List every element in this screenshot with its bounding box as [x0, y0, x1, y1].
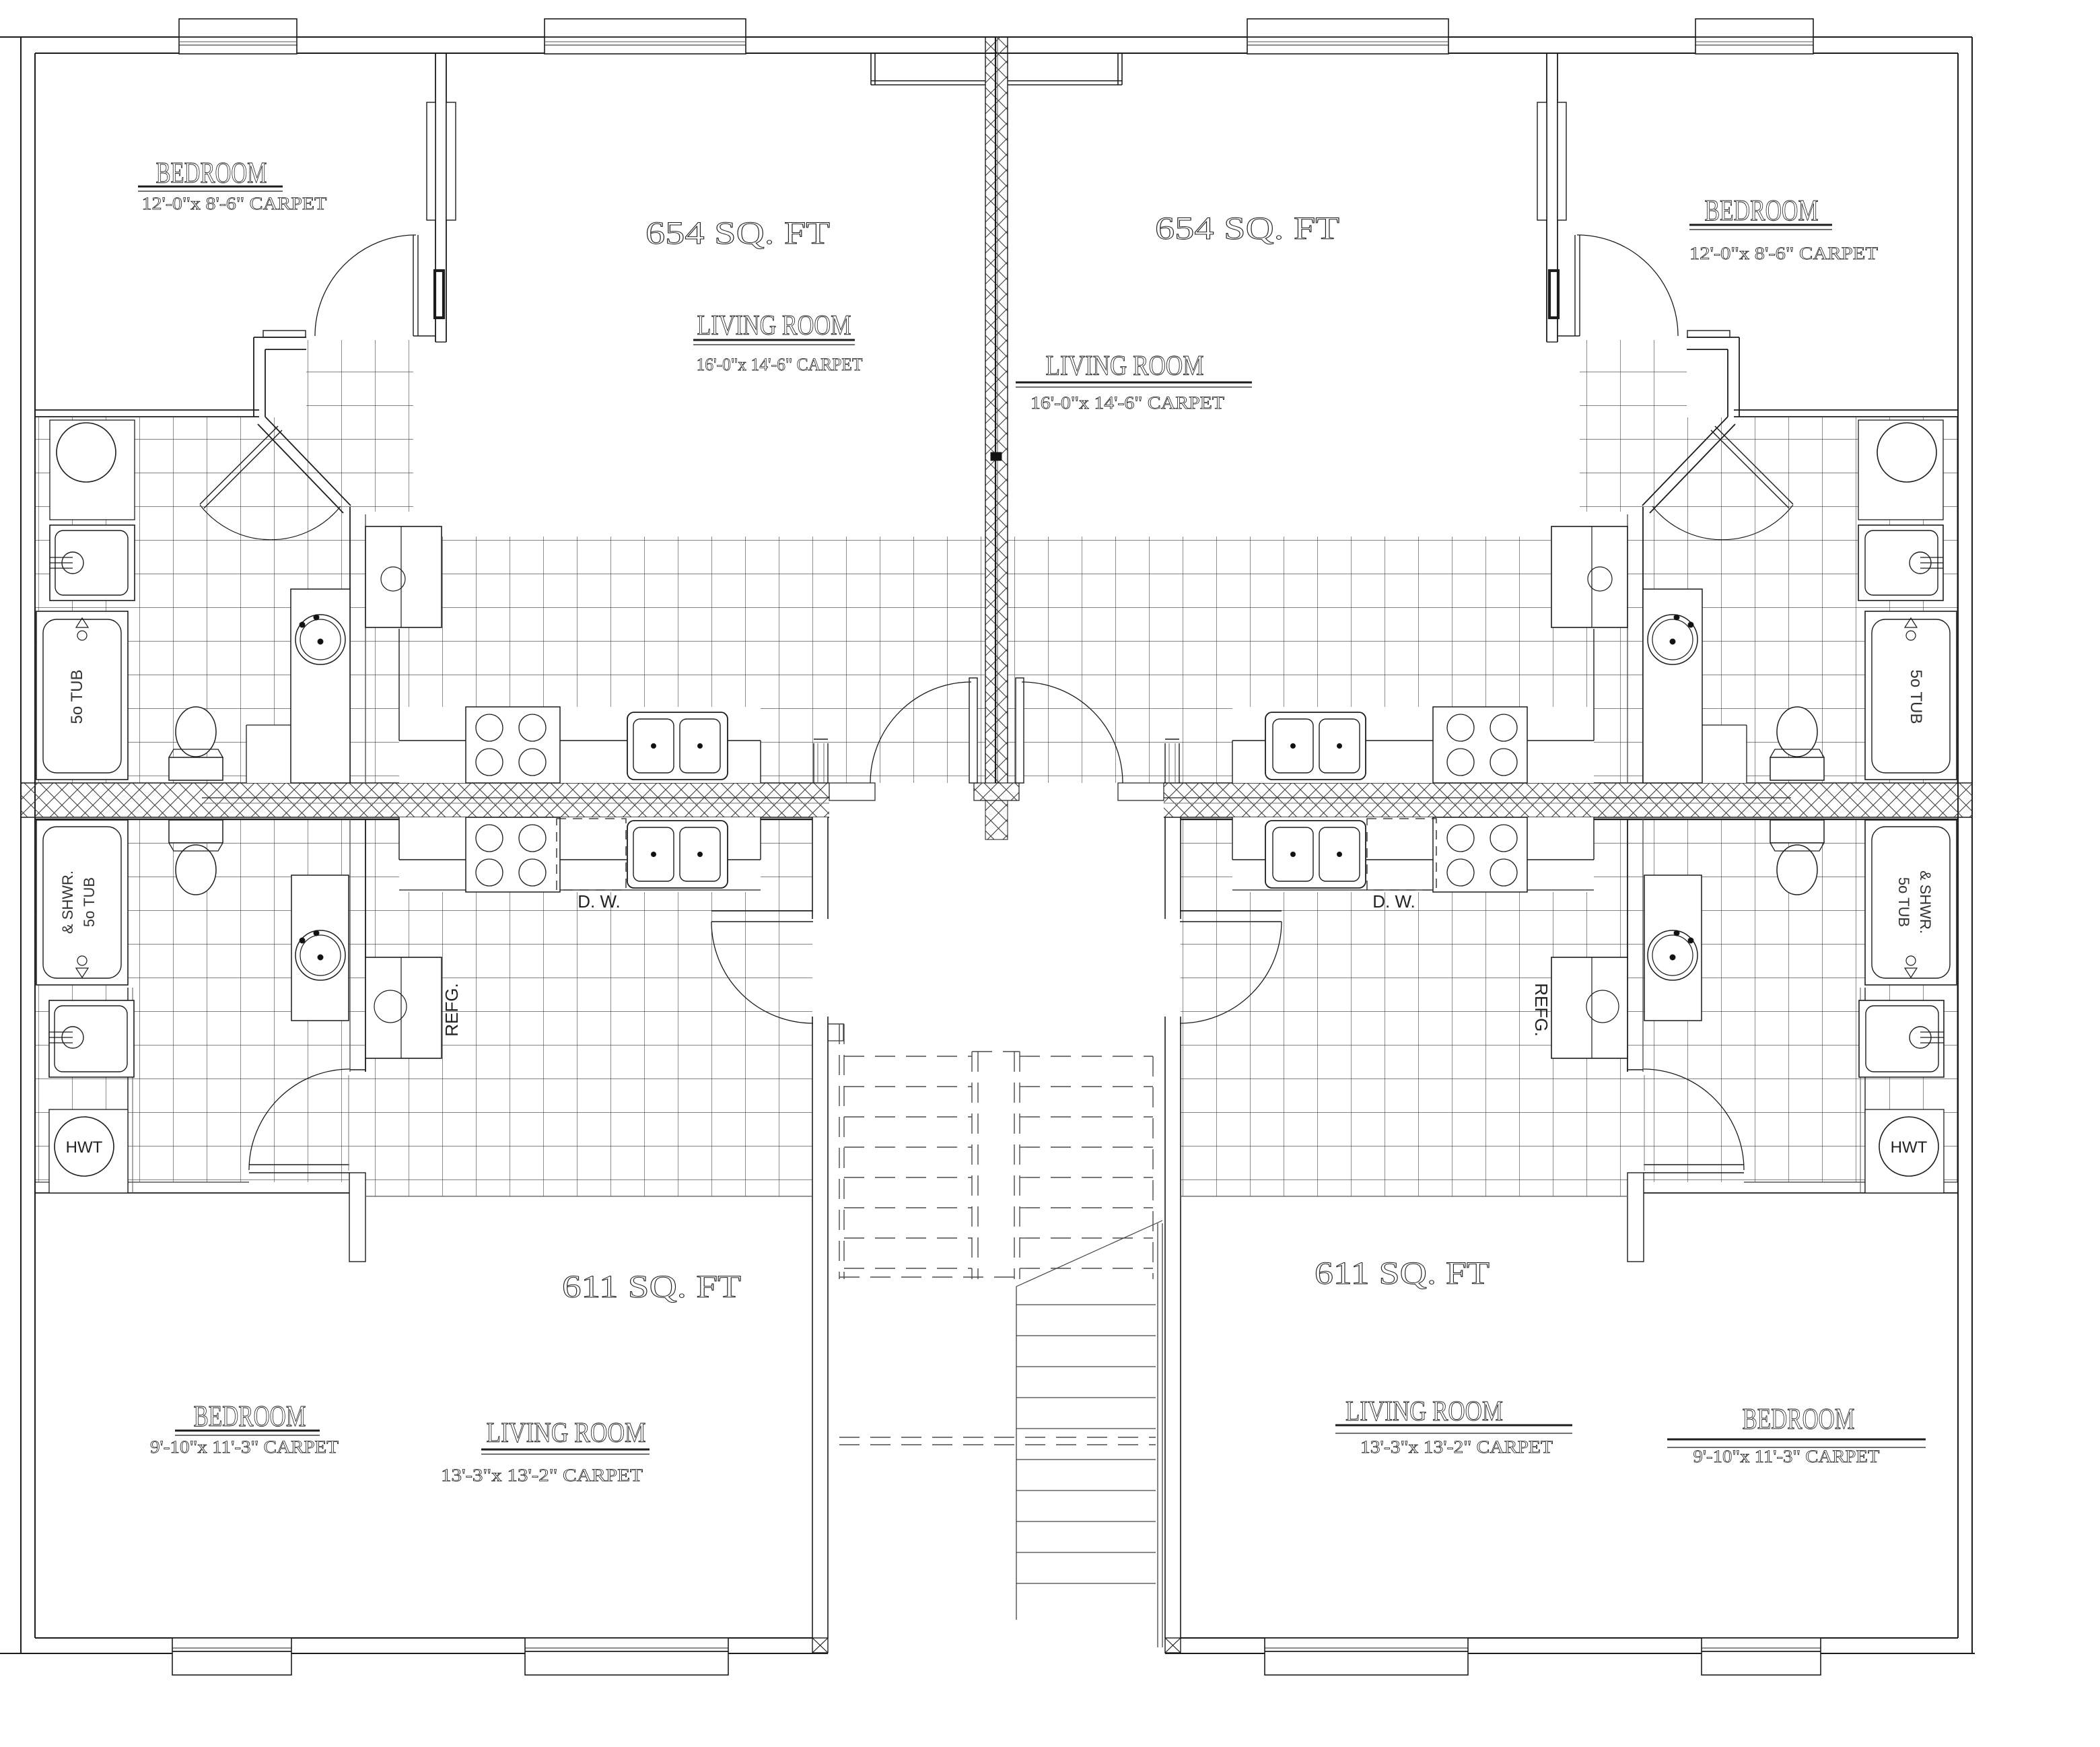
svg-text:REFG.: REFG. — [442, 983, 462, 1036]
svg-text:13'-3"x 13'-2" CARPET: 13'-3"x 13'-2" CARPET — [1360, 1437, 1553, 1457]
svg-text:D. W.: D. W. — [1372, 891, 1415, 912]
svg-text:611 SQ. FT: 611 SQ. FT — [562, 1269, 741, 1305]
svg-text:12'-0"x 8'-6" CARPET: 12'-0"x 8'-6" CARPET — [142, 194, 327, 213]
svg-text:16'-0"x 14'-6" CARPET: 16'-0"x 14'-6" CARPET — [1030, 393, 1224, 413]
svg-text:9'-10"x 11'-3" CARPET: 9'-10"x 11'-3" CARPET — [150, 1437, 339, 1457]
svg-text:13'-3"x 13'-2" CARPET: 13'-3"x 13'-2" CARPET — [441, 1466, 643, 1485]
svg-text:12'-0"x 8'-6" CARPET: 12'-0"x 8'-6" CARPET — [1689, 244, 1878, 263]
svg-text:LIVING ROOM: LIVING ROOM — [1345, 1396, 1503, 1427]
svg-text:5o TUB: 5o TUB — [68, 670, 86, 724]
svg-text:& SHWR.: & SHWR. — [1917, 870, 1934, 934]
svg-text:LIVING ROOM: LIVING ROOM — [487, 1418, 646, 1449]
svg-text:BEDROOM: BEDROOM — [1743, 1402, 1855, 1435]
svg-text:9'-10"x 11'-3" CARPET: 9'-10"x 11'-3" CARPET — [1693, 1447, 1880, 1466]
svg-text:654 SQ. FT: 654 SQ. FT — [645, 215, 830, 251]
svg-text:REFG.: REFG. — [1531, 983, 1551, 1036]
svg-text:654 SQ. FT: 654 SQ. FT — [1155, 211, 1339, 246]
svg-text:611 SQ. FT: 611 SQ. FT — [1315, 1256, 1490, 1291]
svg-text:5o TUB: 5o TUB — [81, 877, 98, 927]
svg-text:HWT: HWT — [1891, 1138, 1928, 1157]
svg-text:HWT: HWT — [66, 1138, 103, 1157]
svg-text:16'-0"x 14'-6" CARPET: 16'-0"x 14'-6" CARPET — [697, 355, 863, 374]
svg-text:& SHWR.: & SHWR. — [59, 870, 76, 934]
svg-text:LIVING ROOM: LIVING ROOM — [697, 310, 851, 341]
svg-text:LIVING ROOM: LIVING ROOM — [1046, 351, 1204, 382]
svg-text:BEDROOM: BEDROOM — [194, 1400, 306, 1433]
svg-text:5o TUB: 5o TUB — [1895, 877, 1912, 927]
svg-text:D. W.: D. W. — [577, 891, 621, 912]
svg-text:5o TUB: 5o TUB — [1907, 670, 1925, 724]
svg-text:BEDROOM: BEDROOM — [1705, 194, 1819, 227]
svg-text:BEDROOM: BEDROOM — [156, 156, 267, 189]
